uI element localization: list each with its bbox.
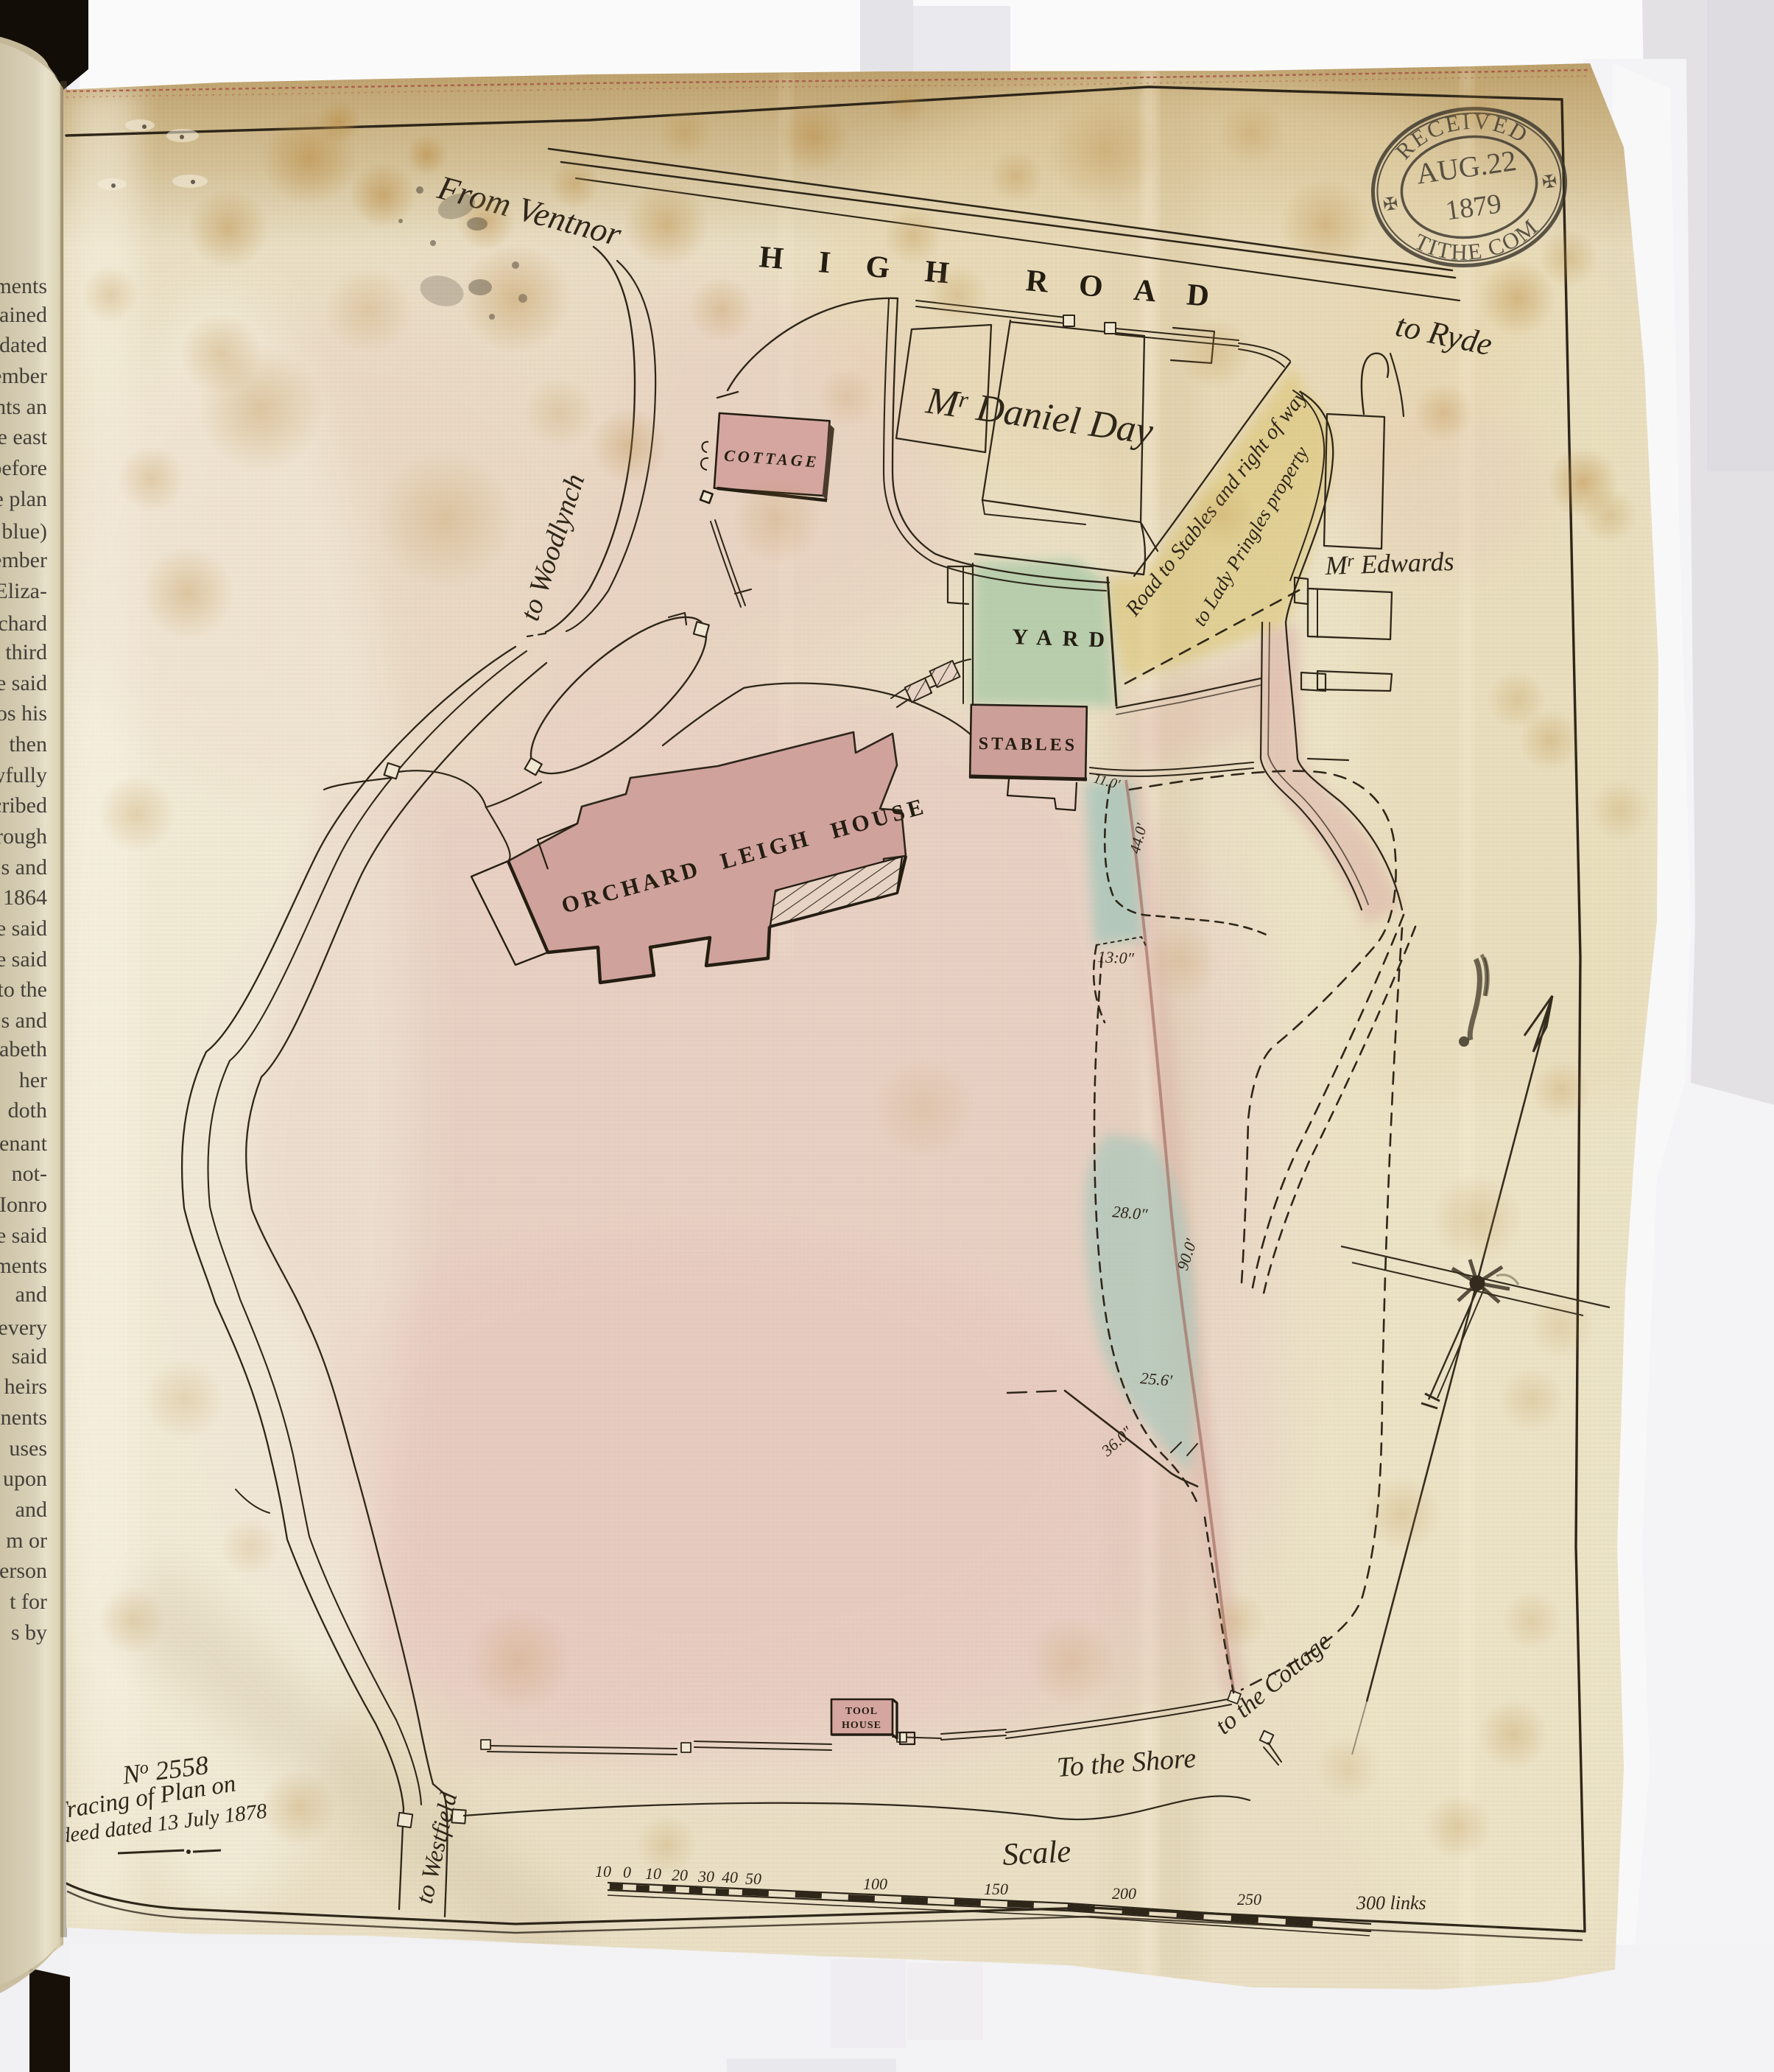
- svg-text:ember: ember: [0, 548, 47, 572]
- svg-text:250: 250: [1237, 1890, 1261, 1908]
- svg-text:cember: cember: [0, 364, 47, 388]
- svg-text:50: 50: [745, 1869, 761, 1888]
- svg-text:YARD: YARD: [1012, 625, 1116, 653]
- svg-text:enant: enant: [0, 1131, 48, 1156]
- svg-text:ments: ments: [0, 1254, 47, 1278]
- svg-text:s by: s by: [11, 1620, 47, 1645]
- svg-text:13:0″: 13:0″: [1097, 947, 1136, 968]
- svg-text:doth: doth: [8, 1098, 47, 1123]
- svg-text:t for: t for: [10, 1590, 47, 1614]
- svg-text:m or: m or: [6, 1528, 47, 1553]
- svg-text:not-: not-: [12, 1162, 47, 1186]
- svg-text:dated: dated: [0, 333, 47, 357]
- svg-text:40: 40: [722, 1868, 738, 1886]
- svg-text:and: and: [15, 1497, 47, 1522]
- svg-text:Scale: Scale: [1002, 1834, 1071, 1872]
- svg-text:ents an: ents an: [0, 395, 47, 419]
- svg-text:nents: nents: [1, 1405, 47, 1430]
- svg-text:30: 30: [697, 1867, 714, 1886]
- svg-text:ntained: ntained: [0, 303, 47, 327]
- svg-text:HOUSE: HOUSE: [842, 1720, 881, 1731]
- svg-text:cribed: cribed: [0, 793, 47, 818]
- svg-text:abeth: abeth: [0, 1037, 47, 1061]
- svg-text:then: then: [9, 732, 47, 756]
- svg-text:Mr Edwards: Mr Edwards: [1324, 547, 1454, 580]
- svg-text:heirs: heirs: [4, 1374, 47, 1399]
- svg-text:aments: aments: [0, 274, 47, 298]
- svg-text:10: 10: [595, 1862, 611, 1880]
- svg-text:to the: to the: [0, 977, 47, 1002]
- svg-text:every: every: [0, 1316, 47, 1340]
- svg-text:e said: e said: [0, 947, 47, 972]
- svg-text:e said: e said: [0, 671, 47, 695]
- svg-text:e east: e east: [0, 425, 48, 449]
- svg-text:her: her: [19, 1068, 47, 1092]
- svg-text:Ionro: Ionro: [0, 1193, 47, 1217]
- svg-text:25.6′: 25.6′: [1140, 1369, 1175, 1390]
- svg-text:third: third: [5, 640, 47, 664]
- svg-text:e said: e said: [0, 916, 47, 941]
- svg-text:Eliza-: Eliza-: [0, 579, 47, 603]
- svg-text:STABLES: STABLES: [979, 734, 1078, 755]
- svg-text:blue): blue): [1, 519, 47, 544]
- svg-text:e said: e said: [0, 1223, 47, 1248]
- svg-text:said: said: [12, 1344, 47, 1369]
- svg-text:erson: erson: [0, 1559, 47, 1583]
- svg-text:upon: upon: [3, 1467, 47, 1491]
- svg-text:0: 0: [623, 1863, 631, 1881]
- svg-text:before: before: [0, 456, 47, 480]
- svg-text:s and: s and: [1, 1008, 48, 1033]
- svg-text:300 links: 300 links: [1356, 1892, 1426, 1914]
- svg-text:s and: s and: [1, 855, 48, 879]
- svg-text:1864: 1864: [3, 885, 47, 910]
- svg-text:rough: rough: [0, 824, 47, 849]
- svg-text:e plan: e plan: [0, 487, 47, 511]
- svg-text:TOOL: TOOL: [845, 1706, 878, 1717]
- svg-text:and: and: [15, 1282, 47, 1307]
- svg-text:✠: ✠: [1541, 172, 1558, 193]
- svg-text:ichard: ichard: [0, 611, 47, 636]
- svg-text:28.0″: 28.0″: [1112, 1202, 1149, 1223]
- svg-text:os his: os his: [0, 701, 47, 726]
- svg-text:150: 150: [984, 1880, 1008, 1898]
- svg-text:✠: ✠: [1382, 194, 1400, 216]
- svg-text:100: 100: [863, 1875, 887, 1893]
- svg-text:wfully: wfully: [0, 763, 47, 787]
- svg-text:uses: uses: [9, 1436, 47, 1461]
- svg-text:200: 200: [1112, 1884, 1136, 1903]
